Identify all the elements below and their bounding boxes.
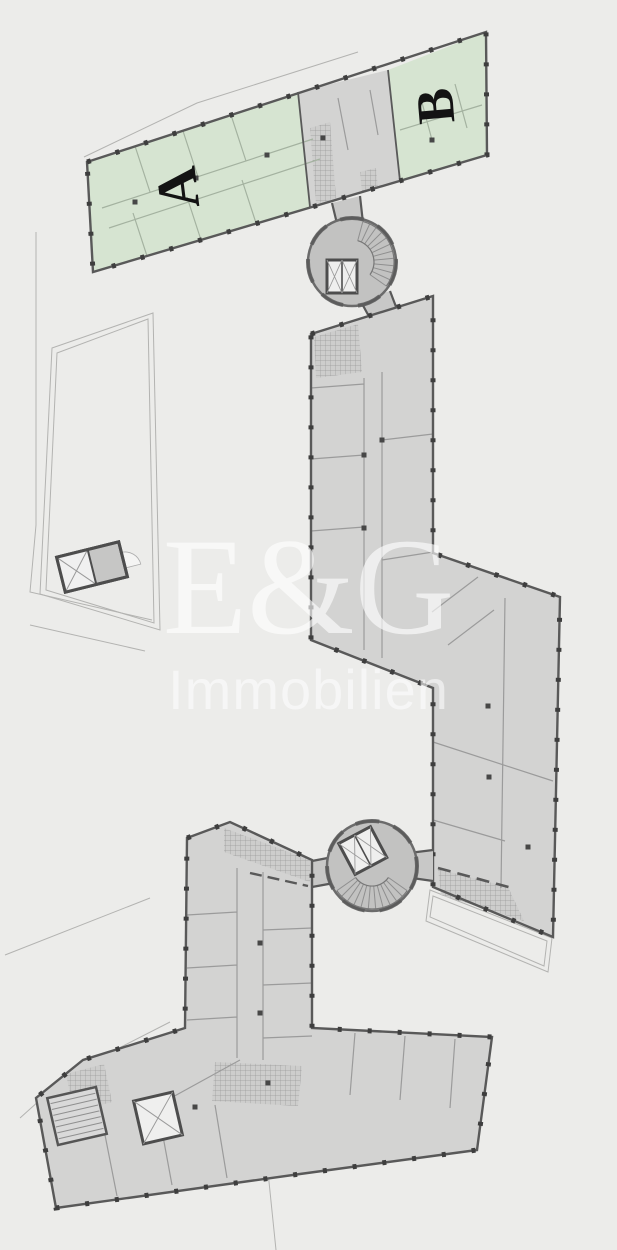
floor-plan-page: A B E&G Immobilien — [0, 0, 617, 1250]
elevator-north — [327, 260, 357, 293]
wing-ab — [87, 32, 487, 272]
section-b-label: B — [403, 73, 468, 138]
elevator-block-west — [57, 538, 143, 592]
stair-core-north — [308, 218, 398, 322]
staircase-south — [47, 1087, 107, 1145]
floor-plan-canvas — [0, 0, 617, 1250]
stair-core-south — [312, 821, 433, 911]
elevator-south-building — [134, 1092, 183, 1144]
section-a-label: A — [142, 152, 213, 223]
